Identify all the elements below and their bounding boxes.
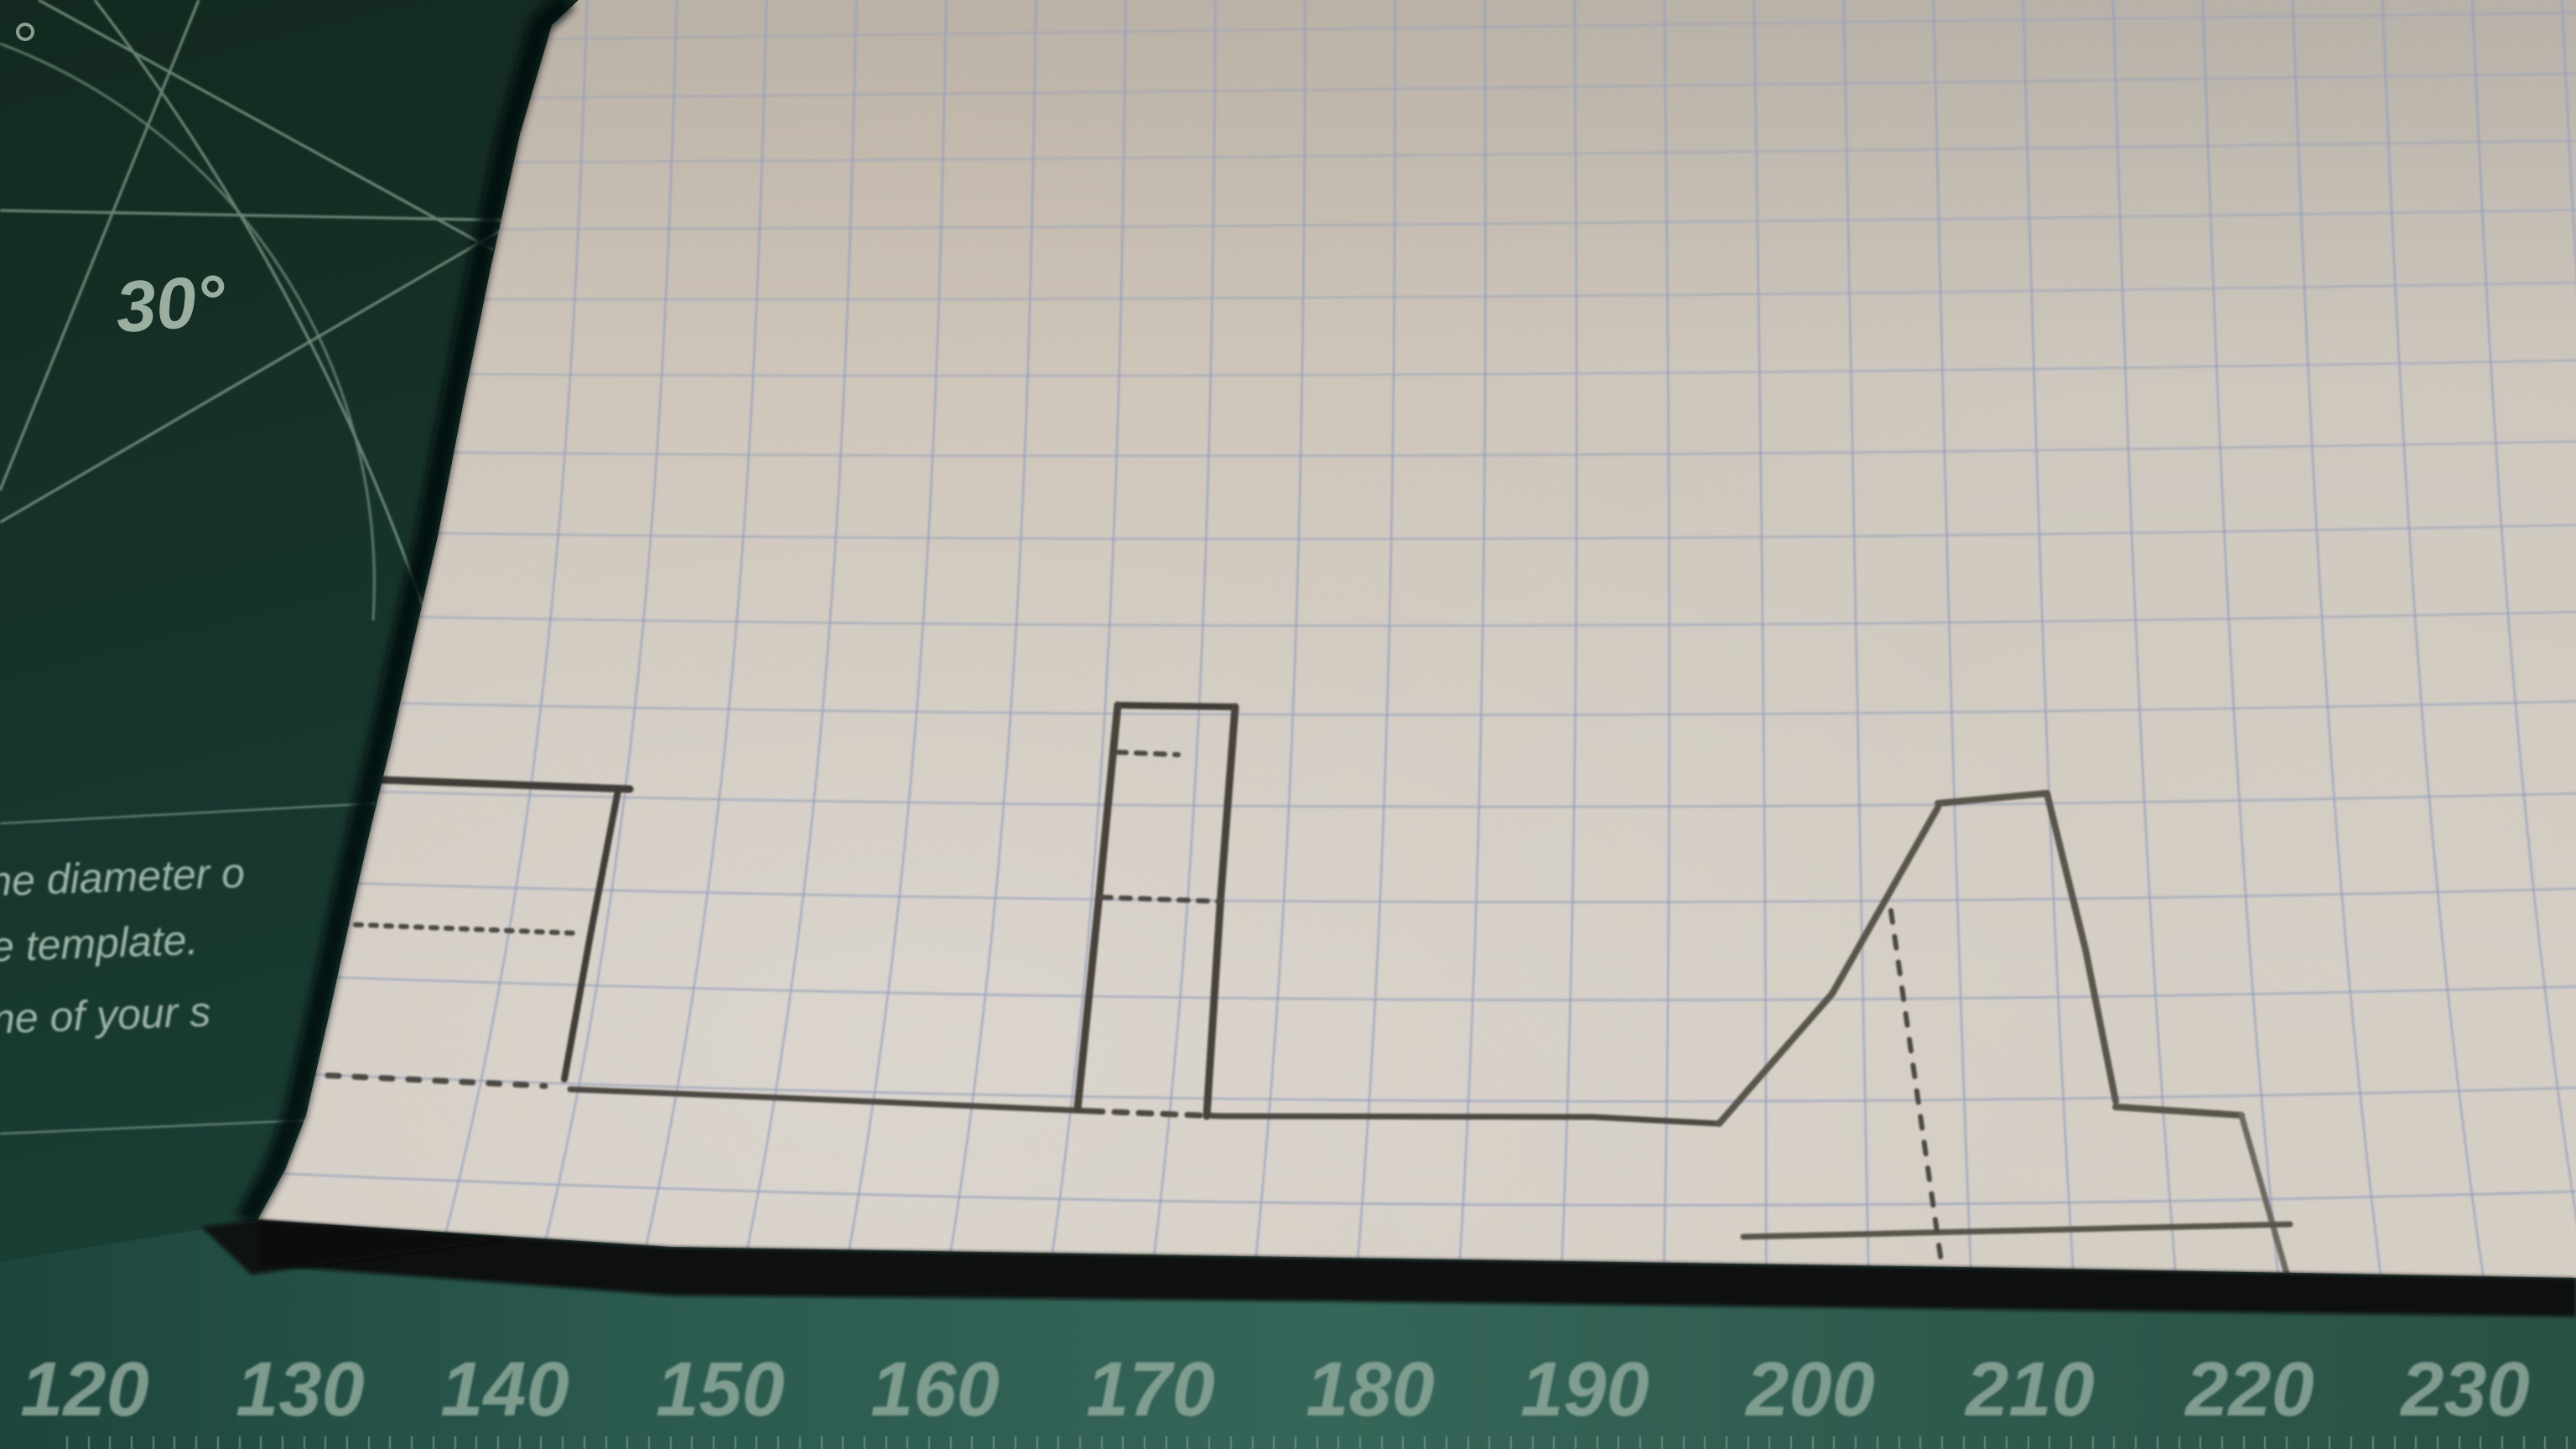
svg-text:ne of your s: ne of your s: [0, 988, 211, 1042]
svg-text:200: 200: [1744, 1347, 1875, 1432]
svg-text:170: 170: [1086, 1347, 1215, 1432]
svg-text:210: 210: [1964, 1347, 2095, 1432]
svg-text:130: 130: [236, 1347, 365, 1432]
svg-text:220: 220: [2184, 1347, 2314, 1432]
svg-text:190: 190: [1520, 1347, 1649, 1432]
svg-text:140: 140: [440, 1347, 569, 1432]
svg-text:180: 180: [1306, 1347, 1435, 1432]
svg-text:e template.: e template.: [0, 917, 199, 971]
svg-text:150: 150: [656, 1347, 785, 1432]
svg-text:160: 160: [870, 1347, 1000, 1432]
svg-text:30°: 30°: [113, 260, 228, 348]
svg-text:120: 120: [20, 1347, 149, 1432]
svg-text:230: 230: [2399, 1347, 2530, 1432]
svg-text:he diameter o: he diameter o: [0, 849, 246, 906]
